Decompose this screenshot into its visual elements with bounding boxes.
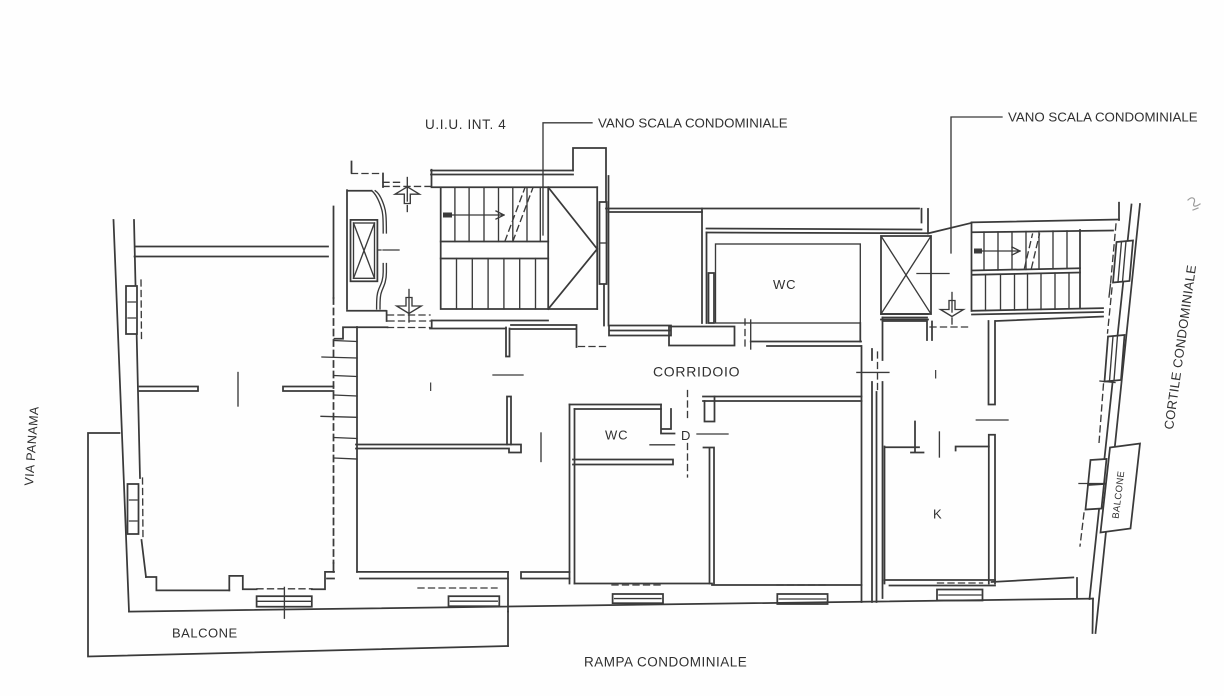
svg-text:I: I: [934, 368, 937, 382]
svg-text:WC: WC: [605, 428, 628, 443]
svg-text:VANO SCALA CONDOMINIALE: VANO SCALA CONDOMINIALE: [1008, 110, 1198, 125]
svg-text:K: K: [933, 507, 942, 522]
svg-text:VANO SCALA CONDOMINIALE: VANO SCALA CONDOMINIALE: [598, 116, 788, 131]
svg-text:CORRIDOIO: CORRIDOIO: [653, 364, 740, 380]
svg-text:D: D: [681, 428, 690, 443]
svg-text:U.I.U. INT. 4: U.I.U. INT. 4: [425, 117, 506, 132]
svg-text:I: I: [429, 380, 432, 394]
svg-text:RAMPA CONDOMINIALE: RAMPA CONDOMINIALE: [584, 655, 747, 670]
svg-text:WC: WC: [773, 277, 796, 292]
svg-text:BALCONE: BALCONE: [172, 626, 238, 641]
